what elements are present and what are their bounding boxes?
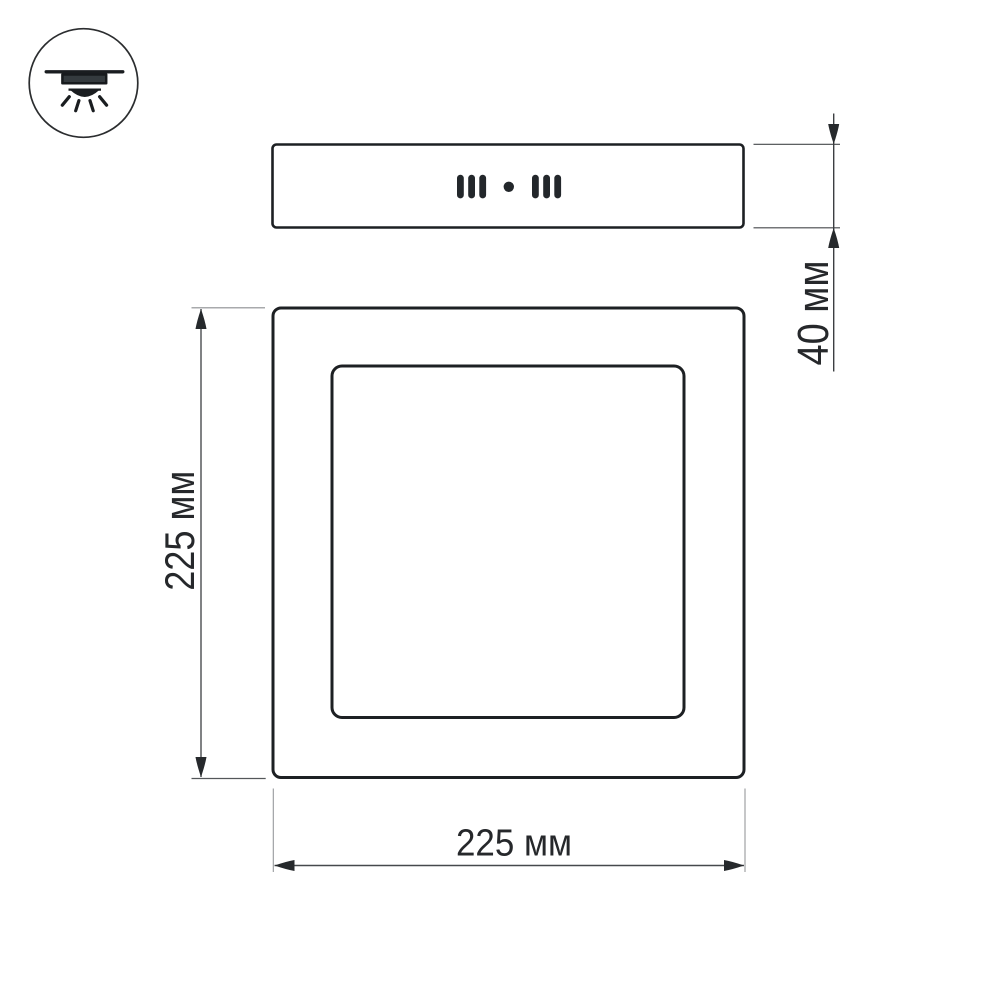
svg-text:225 мм: 225 мм	[456, 823, 572, 865]
svg-text:40 мм: 40 мм	[789, 261, 838, 366]
svg-text:225 мм: 225 мм	[156, 471, 203, 591]
